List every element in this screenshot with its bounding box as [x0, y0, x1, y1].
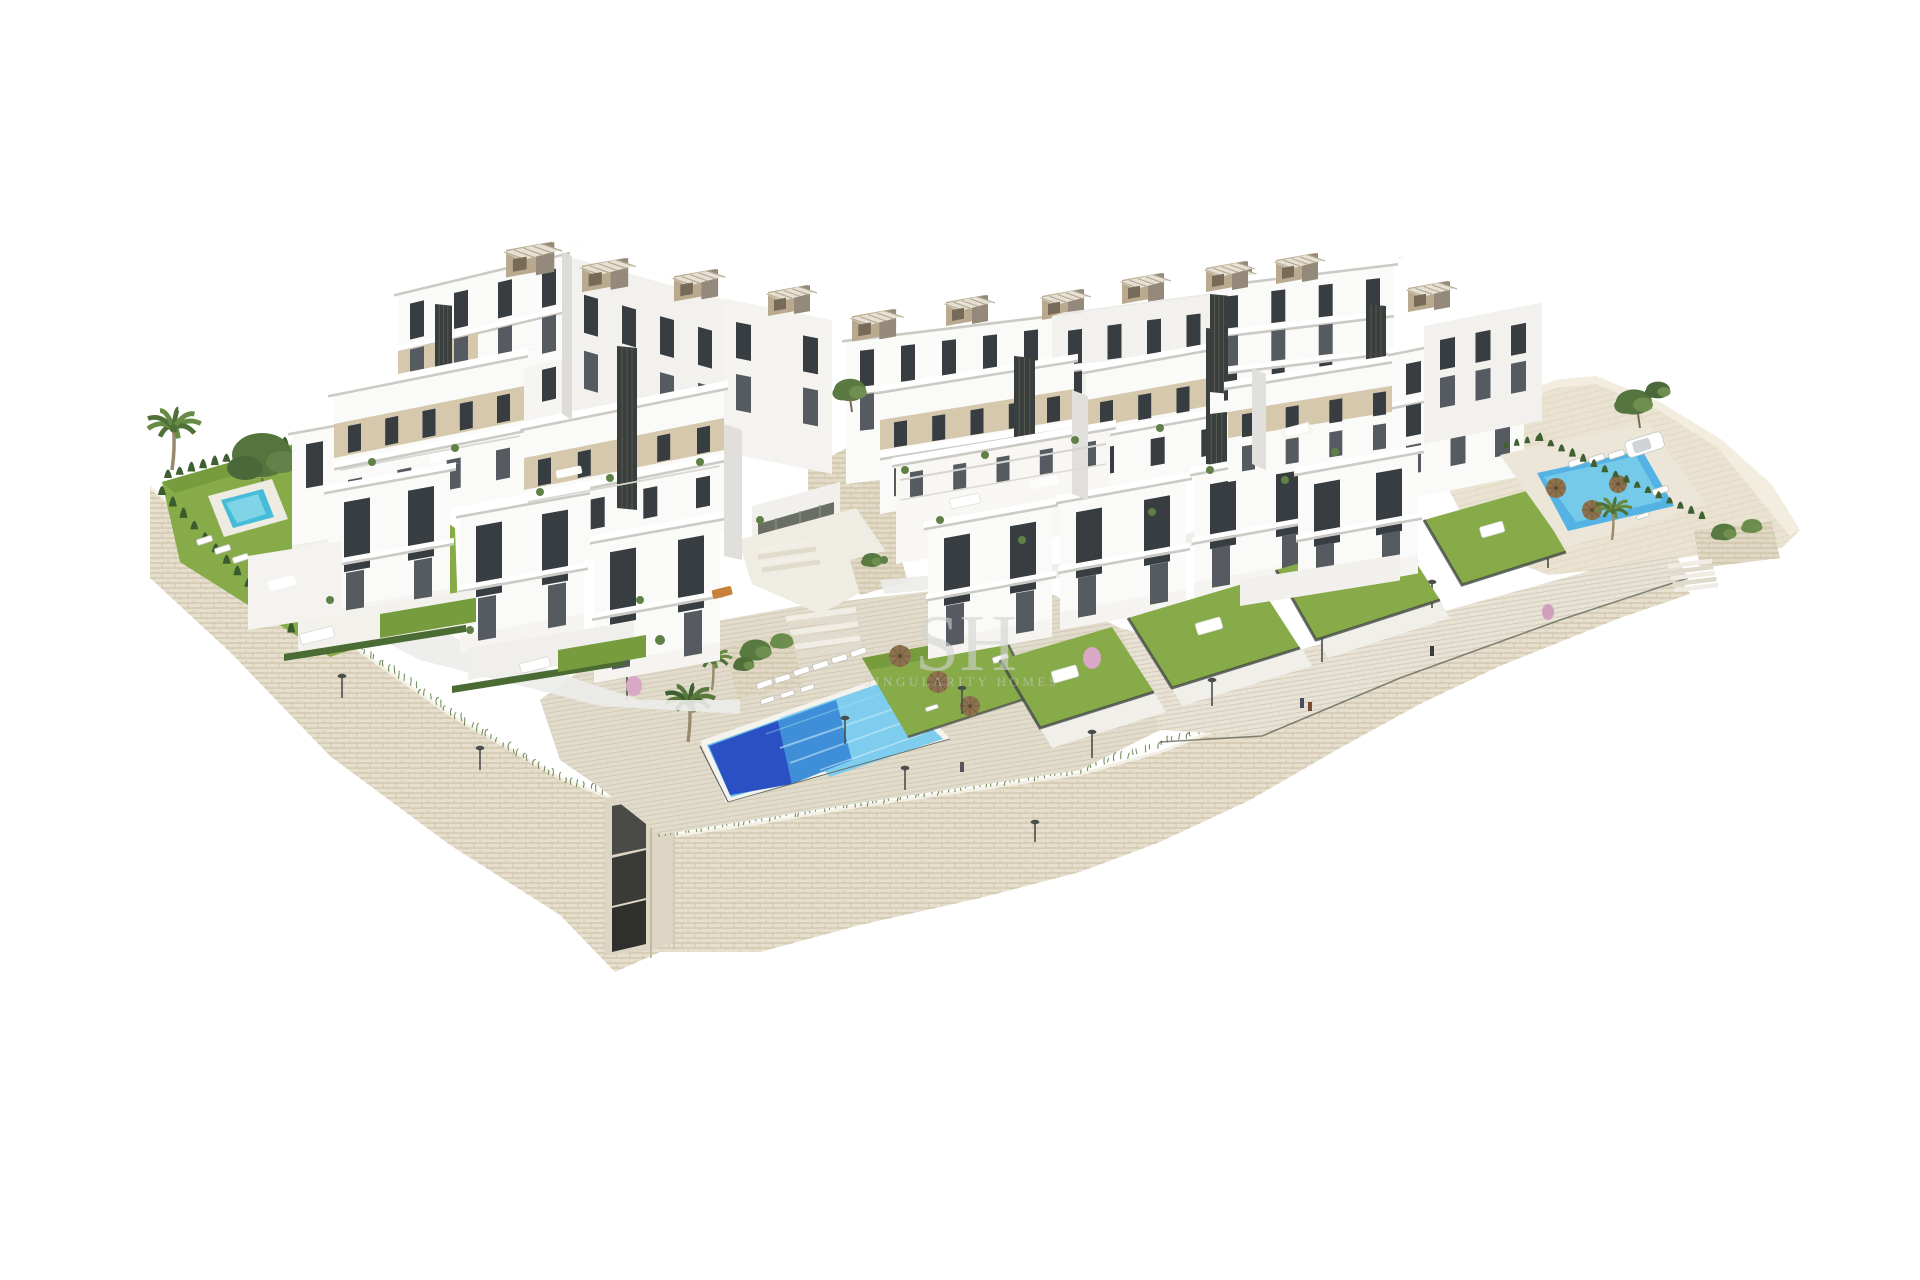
svg-text:SINGULARITY HOMES: SINGULARITY HOMES [864, 674, 1059, 689]
